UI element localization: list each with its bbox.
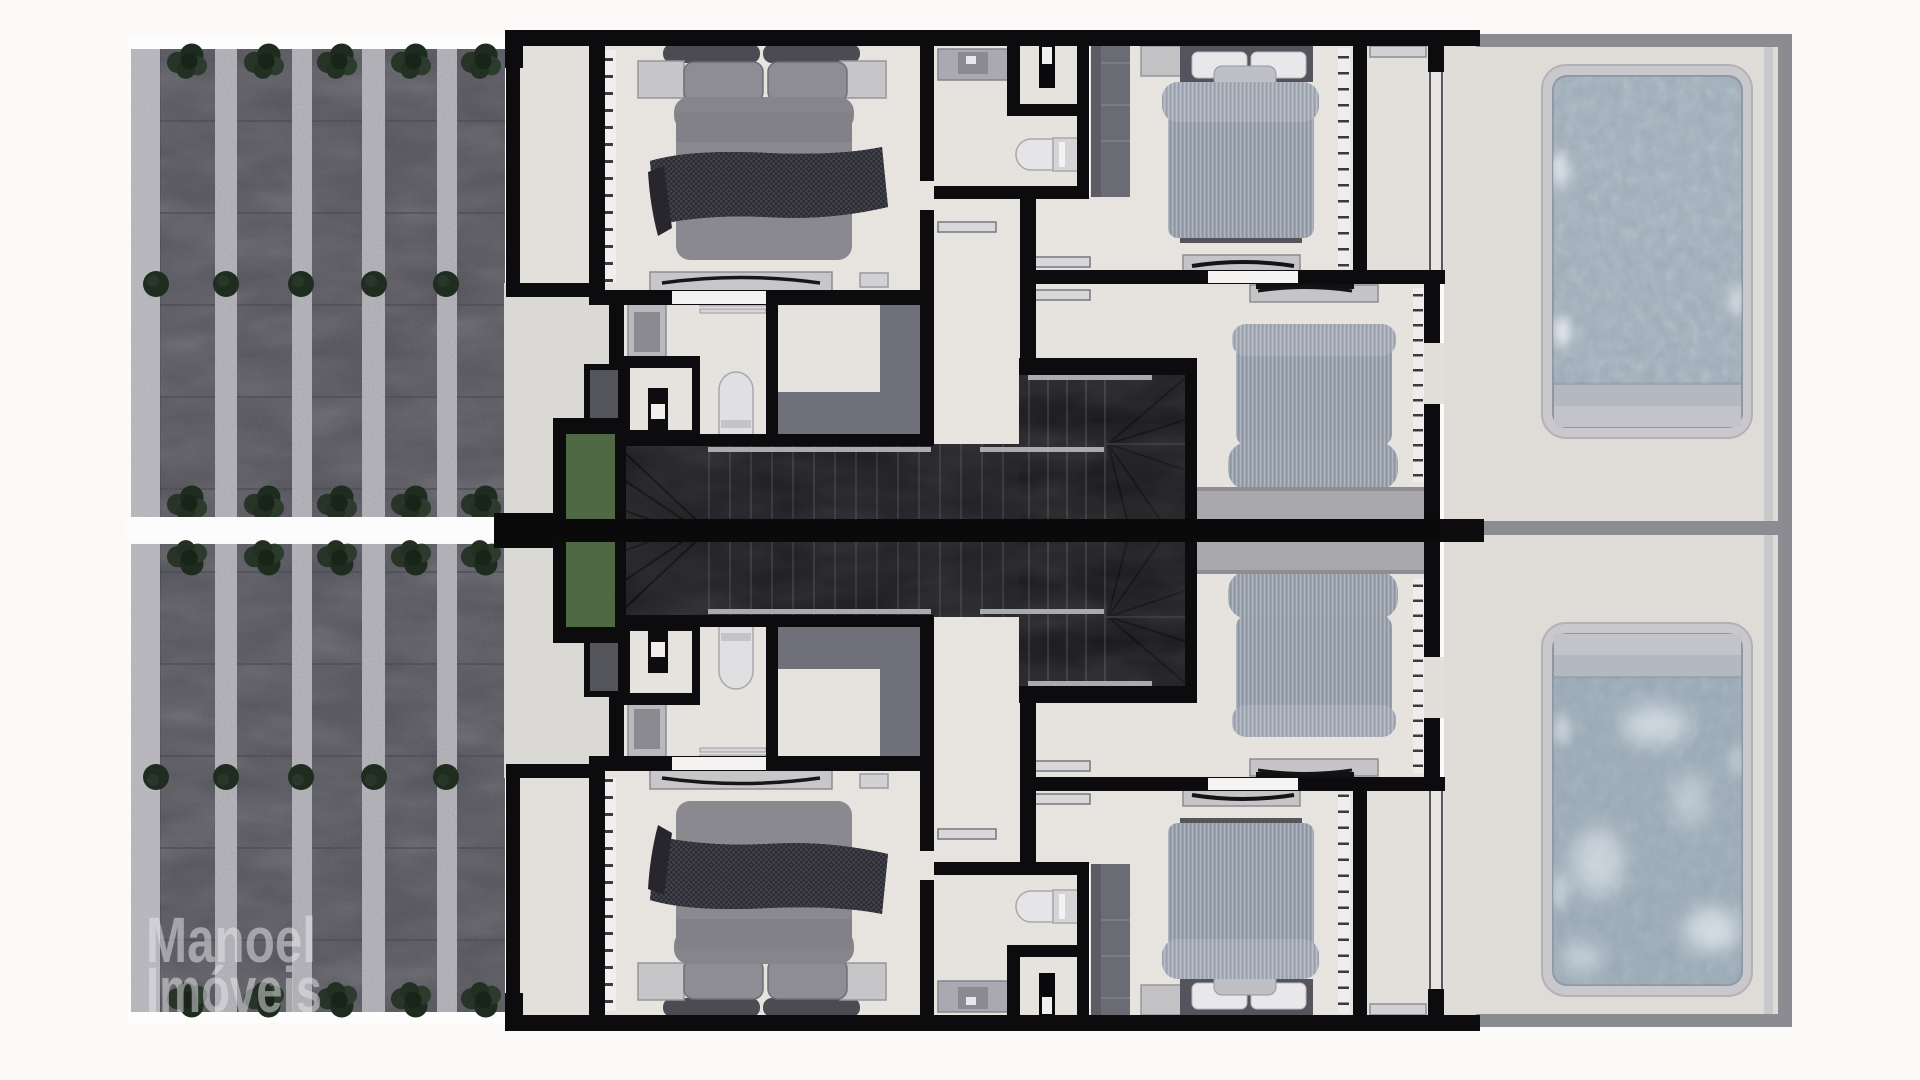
svg-text:Imóveis: Imóveis <box>146 954 322 1026</box>
